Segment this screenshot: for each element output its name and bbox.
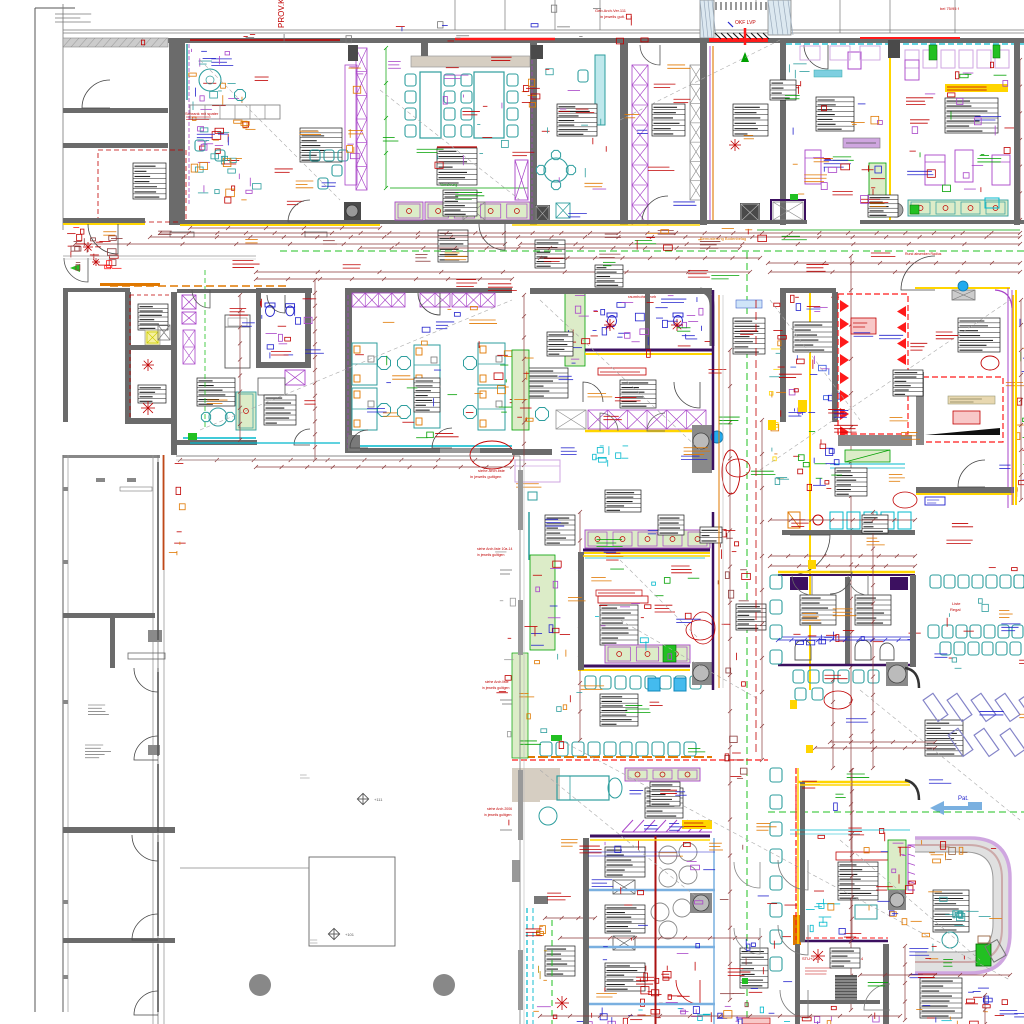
svg-text:in jeweils gultigen: in jeweils gultigen: [477, 553, 504, 557]
svg-text:Liste: Liste: [952, 601, 961, 606]
svg-text:STU+2.14: STU+2.14: [802, 956, 821, 961]
svg-text:OKF LVP: OKF LVP: [735, 20, 756, 26]
svg-text:PROV.KRB: PROV.KRB: [277, 0, 286, 28]
svg-text:in jeweils gultigen: in jeweils gultigen: [482, 686, 509, 690]
svg-text:raumhoher vorh: raumhoher vorh: [628, 294, 656, 299]
svg-text:Rund absenken Radius: Rund absenken Radius: [905, 252, 942, 256]
svg-text:in jeweils gult.: in jeweils gult.: [600, 14, 625, 19]
svg-text:Schrank mit spater: Schrank mit spater: [185, 111, 219, 116]
svg-text:siehe Arch.2006: siehe Arch.2006: [487, 807, 512, 811]
svg-text:+101: +101: [345, 932, 355, 937]
svg-text:siehe Arch.liste 10a-14: siehe Arch.liste 10a-14: [477, 547, 512, 551]
svg-text:in jeweils gultigen: in jeweils gultigen: [484, 813, 511, 817]
svg-text:bei 75/95 f: bei 75/95 f: [940, 6, 960, 11]
svg-text:+111: +111: [374, 797, 383, 802]
svg-text:Regal: Regal: [950, 607, 961, 612]
svg-text:siehe Arch.liste: siehe Arch.liste: [478, 468, 506, 473]
svg-text:in jeweils gultigen: in jeweils gultigen: [470, 474, 501, 479]
svg-text:Pat.: Pat.: [958, 796, 969, 802]
svg-text:Verrohrung: Verrohrung: [440, 183, 457, 187]
